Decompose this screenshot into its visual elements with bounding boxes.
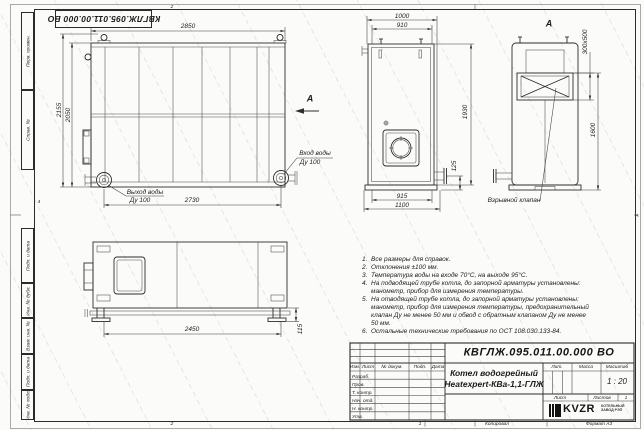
col-header-podp: Подп. [414, 365, 427, 370]
dim-2050: 2050 [66, 108, 73, 122]
top-view-geometry [60, 27, 333, 208]
org-name-line2: ЗАВОД РЭП [601, 408, 624, 412]
view-a-title: А [546, 20, 553, 29]
col-header-izm: Изм. [350, 365, 360, 370]
note-item: 1.Все размеры для справок. [362, 256, 594, 264]
kvzr-logo-icon [549, 404, 561, 417]
sheets-value: 1 [625, 395, 628, 400]
note-item: 5.На отводящей трубе котла, до запорной … [362, 296, 594, 328]
lit-header: Лит. [551, 365, 562, 370]
col-header-dokum: № докум. [381, 365, 402, 370]
drawing-linework [0, 0, 644, 430]
drawing-sheet: Перв. примен. Справ. № Подп. и дата Инв.… [0, 0, 644, 430]
front-view-geometry [362, 16, 474, 212]
org-name: КОТЕЛЬНЫЙ ЗАВОД РЭП [601, 404, 624, 412]
col-header-data: Дата [432, 365, 445, 370]
dim-125: 125 [452, 161, 459, 172]
dim-1600: 1600 [591, 123, 598, 137]
side-view-geometry [84, 242, 299, 337]
scale-value: 1 : 20 [607, 378, 627, 386]
row-label-nkontr: Н. контр. [352, 406, 374, 411]
copied-label: Копировал [485, 421, 509, 426]
dim-910: 910 [397, 22, 408, 29]
mass-header: Масса [579, 365, 593, 370]
col-header-list: Лист [361, 365, 373, 370]
product-name-line1: Котел водогрейный [450, 369, 538, 378]
outlet-label: Выход воды [127, 189, 164, 196]
dim-1100: 1100 [395, 202, 409, 209]
view-a-geometry [494, 37, 602, 201]
row-label-tkontr: Т. контр. [352, 390, 373, 395]
note-item: 6.Остальные технические требования по ОС… [362, 328, 594, 336]
inlet-label: Вход воды [299, 151, 331, 158]
product-name-line2: Heatexpert-КВа-1,1-ГЛЖ [444, 380, 543, 389]
title-block-doc-number: КВГЛЖ.095.011.00.000 ВО [464, 348, 615, 359]
dim-2450: 2450 [185, 327, 199, 334]
dim-915: 915 [397, 193, 408, 200]
section-arrow-label: А [307, 95, 314, 104]
outlet-dn-label: Ду 100 [130, 197, 151, 204]
sheet-label: Лист [554, 395, 566, 400]
row-label-razrab: Разраб. [352, 374, 369, 379]
dim-2155: 2155 [57, 103, 64, 117]
kvzr-logo-text: KVZR [563, 403, 595, 416]
row-label-prov: Пров. [352, 382, 365, 387]
note-item: 2.Отклонения ±100 мм. [362, 264, 594, 272]
dim-2730: 2730 [185, 198, 199, 205]
dim-115: 115 [298, 324, 305, 334]
dim-1930: 1930 [463, 105, 470, 119]
row-label-nachotd: Нач. отд. [352, 398, 374, 403]
explosion-valve-callout: Взрывной клапан [488, 198, 541, 205]
row-label-utv: Утв. [352, 414, 363, 419]
note-item: 3.Температура воды на входе 70°С, на вых… [362, 272, 594, 280]
format-label: Формат А3 [586, 421, 612, 426]
dim-1000: 1000 [395, 13, 409, 20]
sheets-label: Листов [593, 395, 610, 400]
dim-2850: 2850 [181, 24, 195, 31]
dim-300x500: 300x500 [583, 30, 590, 55]
note-item: 4.На подводящей трубе котла, до запорной… [362, 280, 594, 296]
inlet-dn-label: Ду 100 [300, 159, 321, 166]
scale-header: Масштаб [606, 365, 628, 370]
technical-notes: 1.Все размеры для справок. 2.Отклонения … [362, 256, 594, 336]
